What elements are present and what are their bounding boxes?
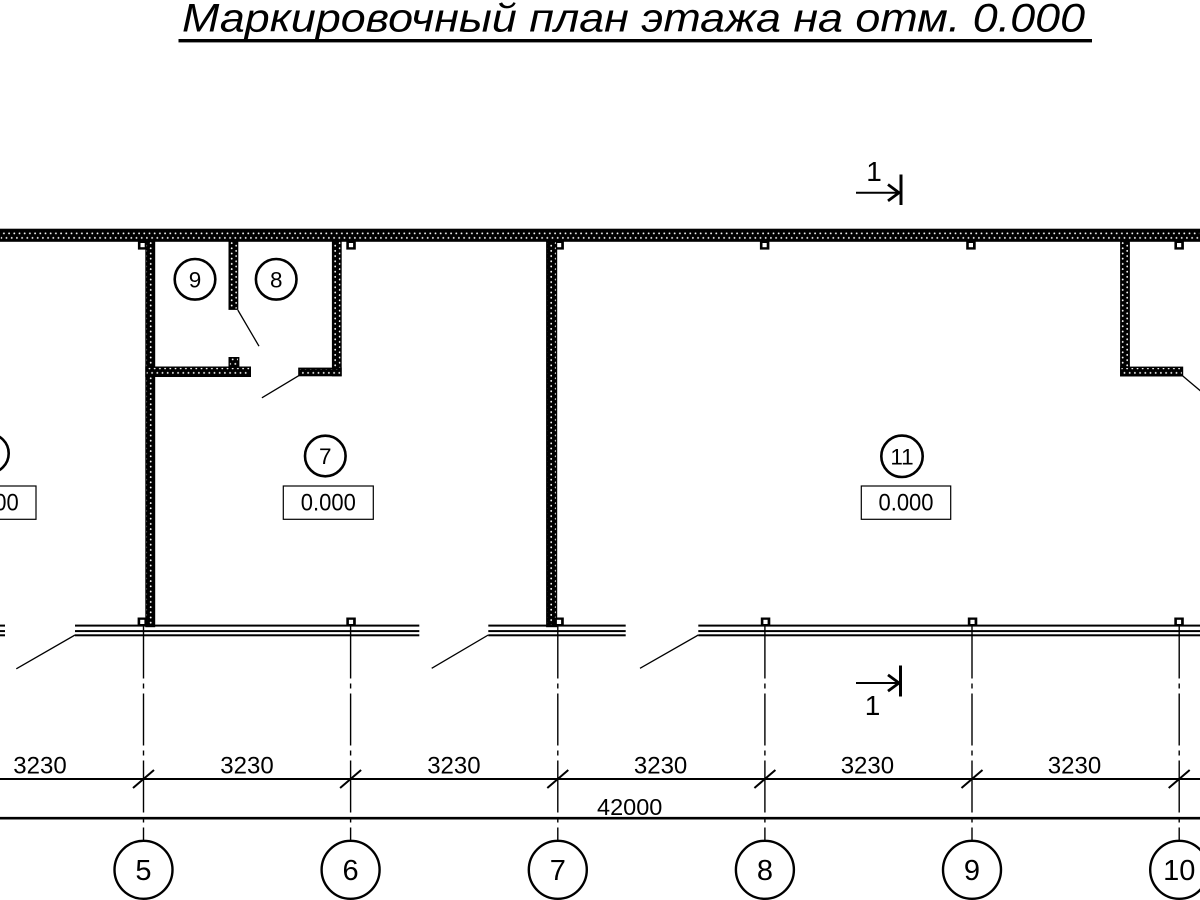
svg-text:3230: 3230 [13,753,66,780]
svg-text:6: 6 [343,855,359,887]
svg-text:9: 9 [189,267,202,292]
svg-text:3230: 3230 [1048,753,1101,780]
svg-text:7: 7 [319,444,332,469]
svg-text:Маркировочный план этажа на от: Маркировочный план этажа на отм. 0.000 [182,0,1085,41]
svg-text:42000: 42000 [597,794,662,820]
svg-text:1: 1 [865,690,881,721]
svg-text:5: 5 [135,855,151,887]
svg-text:0.000: 0.000 [879,490,934,517]
svg-text:3230: 3230 [427,753,480,780]
svg-text:9: 9 [964,855,980,887]
svg-text:0.000: 0.000 [0,490,19,517]
svg-text:3230: 3230 [220,753,273,780]
svg-text:3230: 3230 [841,753,894,780]
svg-text:11: 11 [890,444,913,469]
svg-text:3230: 3230 [634,753,687,780]
svg-text:7: 7 [550,855,566,887]
svg-text:8: 8 [757,855,773,887]
svg-text:8: 8 [270,267,283,292]
svg-text:10: 10 [1163,855,1195,887]
svg-text:0.000: 0.000 [301,490,356,517]
svg-text:1: 1 [866,156,882,187]
